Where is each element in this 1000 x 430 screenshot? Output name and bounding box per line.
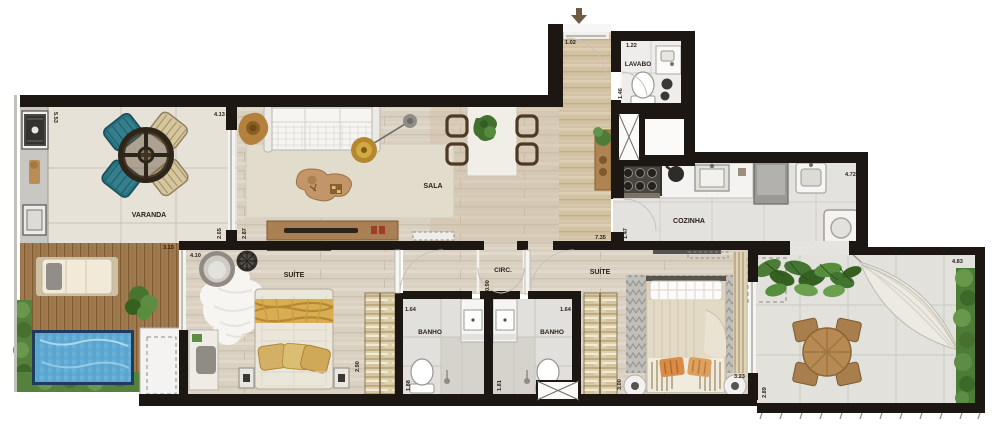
svg-text:2.65: 2.65 (217, 228, 223, 239)
svg-text:3.15: 3.15 (163, 245, 174, 251)
svg-text:SUÍTE: SUÍTE (284, 270, 305, 279)
svg-text:SALA: SALA (423, 183, 442, 190)
svg-text:3.00: 3.00 (617, 379, 623, 390)
svg-text:1.88: 1.88 (406, 380, 412, 391)
svg-text:4.72: 4.72 (845, 172, 856, 178)
svg-text:BANHO: BANHO (418, 329, 442, 336)
svg-text:5.53: 5.53 (52, 112, 58, 123)
svg-text:1.46: 1.46 (618, 88, 624, 99)
svg-text:2.90: 2.90 (355, 361, 361, 372)
svg-text:1.64: 1.64 (405, 307, 417, 313)
svg-text:3.23: 3.23 (734, 374, 745, 380)
svg-text:1.02: 1.02 (565, 40, 576, 46)
svg-text:2.87: 2.87 (242, 228, 248, 239)
svg-text:1.81: 1.81 (497, 380, 503, 391)
svg-text:0.90: 0.90 (485, 280, 491, 291)
svg-text:1.22: 1.22 (626, 43, 637, 49)
svg-text:7.35: 7.35 (595, 235, 606, 241)
svg-text:LAVABO: LAVABO (625, 61, 651, 68)
svg-text:CIRC.: CIRC. (494, 267, 512, 274)
svg-text:VARANDA: VARANDA (132, 212, 166, 219)
svg-text:4.13: 4.13 (214, 112, 225, 118)
svg-text:SUÍTE: SUÍTE (590, 267, 611, 276)
svg-text:4.10: 4.10 (190, 253, 201, 259)
svg-text:COZINHA: COZINHA (673, 218, 705, 225)
svg-text:1.64: 1.64 (560, 307, 572, 313)
svg-text:BANHO: BANHO (540, 329, 564, 336)
svg-text:4.83: 4.83 (952, 259, 963, 265)
svg-text:1.47: 1.47 (623, 228, 629, 239)
svg-text:2.89: 2.89 (762, 387, 768, 398)
